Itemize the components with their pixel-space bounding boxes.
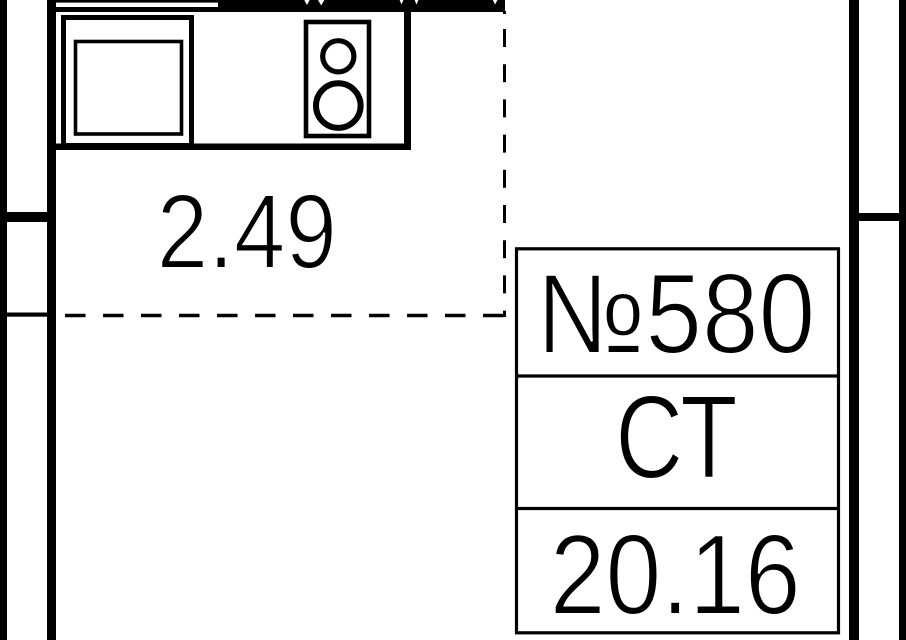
svg-text:20.16: 20.16 bbox=[550, 512, 801, 639]
svg-text:СТ: СТ bbox=[615, 372, 738, 504]
svg-text:2.49: 2.49 bbox=[157, 172, 337, 291]
svg-text:№580: №580 bbox=[536, 251, 815, 378]
